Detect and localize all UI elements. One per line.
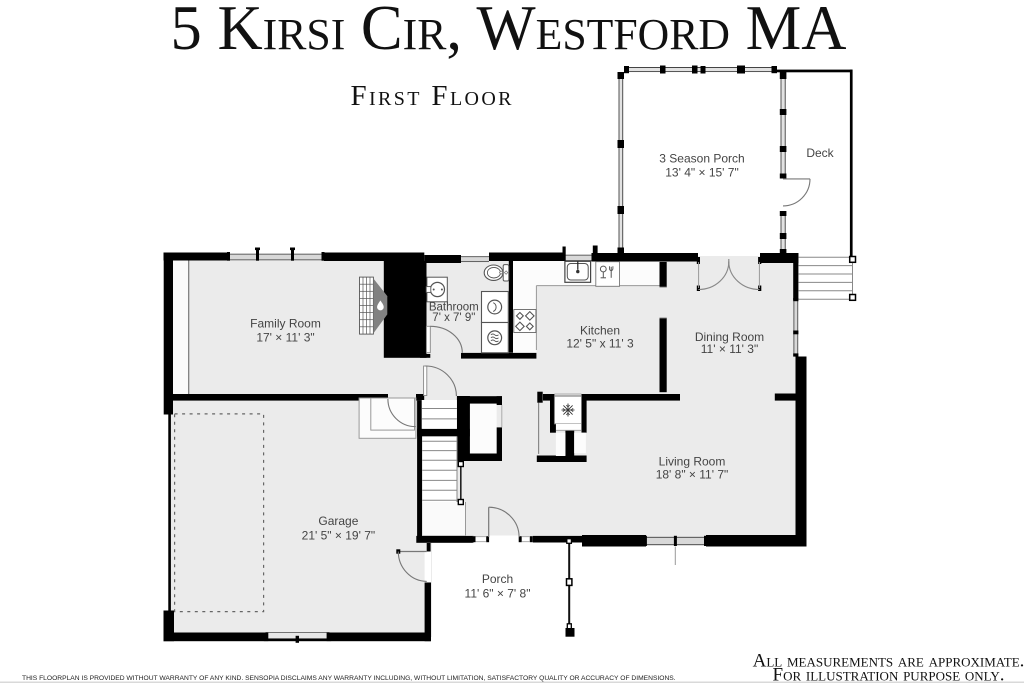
svg-text:5 Kirsi Cir, Westford MA: 5 Kirsi Cir, Westford MA <box>171 0 847 63</box>
svg-text:7' x 7' 9": 7' x 7' 9" <box>432 312 475 324</box>
svg-text:17' × 11' 3": 17' × 11' 3" <box>256 331 314 345</box>
svg-text:11' × 11' 3": 11' × 11' 3" <box>701 342 758 356</box>
svg-text:Kitchen: Kitchen <box>580 323 620 337</box>
svg-text:Family Room: Family Room <box>250 317 321 331</box>
svg-text:18' 8" × 11' 7": 18' 8" × 11' 7" <box>656 468 729 482</box>
svg-text:21' 5" × 19' 7": 21' 5" × 19' 7" <box>302 528 376 542</box>
svg-text:12' 5" x 11' 3: 12' 5" x 11' 3 <box>566 336 634 350</box>
svg-text:Living Room: Living Room <box>659 454 726 468</box>
svg-text:First Floor: First Floor <box>351 80 513 112</box>
svg-text:For illustration purpose only.: For illustration purpose only. <box>773 665 1005 683</box>
svg-text:Porch: Porch <box>482 572 513 586</box>
svg-text:3 Season Porch: 3 Season Porch <box>659 152 744 166</box>
svg-text:Garage: Garage <box>318 514 358 528</box>
svg-text:Deck: Deck <box>806 146 834 160</box>
svg-text:THIS FLOORPLAN IS PROVIDED WIT: THIS FLOORPLAN IS PROVIDED WITHOUT WARRA… <box>22 675 676 682</box>
svg-text:13' 4" × 15' 7": 13' 4" × 15' 7" <box>665 166 739 180</box>
svg-text:11' 6" × 7' 8": 11' 6" × 7' 8" <box>465 587 531 601</box>
